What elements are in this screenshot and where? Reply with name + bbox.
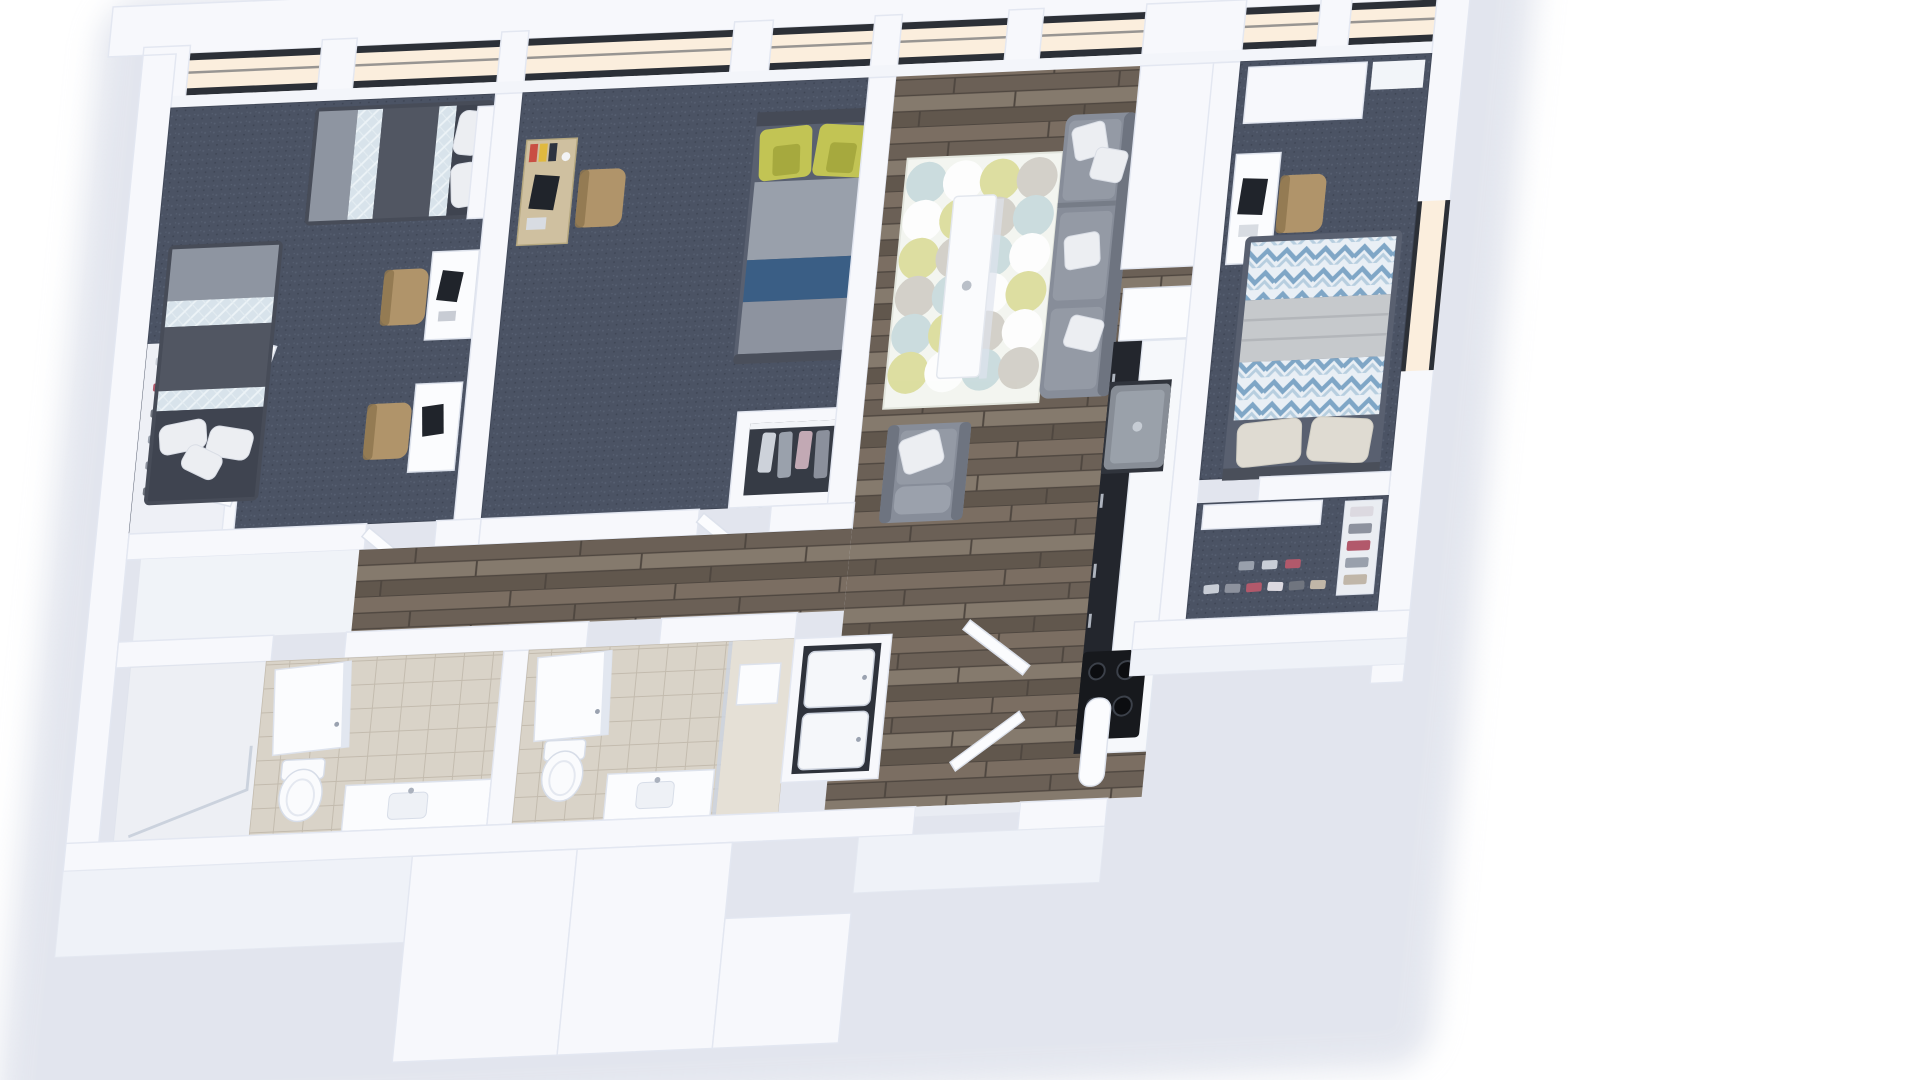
closet-shelf bbox=[1202, 500, 1323, 529]
refrigerator bbox=[1101, 379, 1172, 474]
pillow-inner bbox=[825, 142, 857, 173]
desk-2 bbox=[408, 382, 463, 472]
shoes bbox=[1289, 580, 1305, 590]
shoes bbox=[1246, 582, 1262, 592]
chair-1 bbox=[379, 268, 429, 326]
bed-duvet bbox=[159, 323, 272, 392]
window-pier bbox=[729, 20, 773, 76]
mirror-cabinet bbox=[273, 661, 352, 755]
bedroom2-south-wall bbox=[769, 503, 855, 533]
chevron-duvet bbox=[1234, 356, 1385, 420]
bed-bedroom-3 bbox=[1222, 230, 1403, 481]
shower-floor bbox=[113, 661, 266, 841]
shoes bbox=[1348, 523, 1372, 534]
green-pillow bbox=[758, 124, 812, 182]
sink-basin bbox=[387, 792, 428, 820]
navy-runner bbox=[743, 255, 864, 302]
shoes bbox=[1343, 574, 1367, 585]
desk-papers bbox=[438, 311, 456, 322]
pillow bbox=[1305, 416, 1374, 463]
vestibule-block bbox=[557, 842, 732, 1055]
south-wall-face bbox=[853, 826, 1105, 893]
window-pier bbox=[1316, 0, 1352, 50]
shoes bbox=[1267, 582, 1284, 591]
bedroom-1 bbox=[129, 94, 496, 534]
sink-basin bbox=[635, 781, 674, 809]
shoes bbox=[1285, 559, 1301, 569]
ac-unit bbox=[1370, 60, 1425, 90]
wardrobe bbox=[1243, 62, 1367, 123]
vestibule-block bbox=[712, 913, 851, 1048]
laptop bbox=[422, 404, 444, 437]
pillow bbox=[1236, 417, 1302, 468]
window-pier bbox=[1142, 0, 1247, 58]
twin-bed-top bbox=[304, 100, 495, 226]
shoes bbox=[1310, 580, 1327, 589]
south-wall-face bbox=[55, 856, 413, 957]
hall-nook-floor bbox=[133, 550, 362, 642]
foot-blanket bbox=[738, 297, 859, 354]
quilt-band bbox=[165, 297, 274, 328]
shoes bbox=[1346, 540, 1370, 551]
shoes bbox=[1224, 584, 1241, 593]
desk-1 bbox=[424, 250, 479, 340]
shoes bbox=[1261, 560, 1277, 570]
floor-plan-render bbox=[0, 0, 1920, 1080]
bathroom-2 bbox=[512, 639, 795, 825]
folded-blanket bbox=[1239, 294, 1391, 362]
chair-bedroom-2 bbox=[574, 168, 626, 228]
pillow-inner bbox=[772, 143, 800, 176]
bedroom1-south-wall bbox=[434, 519, 481, 547]
apartment bbox=[0, 0, 1540, 1080]
bed-duvet bbox=[372, 106, 439, 218]
vanity-sink bbox=[341, 779, 491, 831]
hanging-clothes bbox=[777, 431, 793, 478]
window-pier bbox=[870, 15, 902, 70]
shoes bbox=[1350, 506, 1374, 517]
shoes bbox=[1238, 561, 1254, 571]
armchair-seat bbox=[893, 484, 952, 514]
window-pier bbox=[497, 31, 529, 86]
window-pier bbox=[317, 38, 357, 94]
bed-foot-blanket bbox=[167, 245, 279, 302]
cabinet-door bbox=[273, 661, 352, 755]
vestibule-block bbox=[392, 849, 577, 1062]
pillow bbox=[1064, 231, 1100, 271]
desk-papers bbox=[1238, 224, 1259, 237]
shoes bbox=[1345, 557, 1369, 568]
chevron-duvet bbox=[1245, 236, 1396, 300]
south-wall bbox=[1018, 798, 1108, 830]
cabinet-door bbox=[534, 651, 612, 742]
bathroom-1 bbox=[113, 651, 504, 841]
desk-bedroom-2 bbox=[517, 138, 578, 245]
shoes bbox=[1203, 584, 1219, 594]
armchair bbox=[879, 422, 972, 524]
mirror-cabinet bbox=[534, 651, 612, 742]
chair-2 bbox=[362, 402, 412, 460]
laundry-closet bbox=[781, 634, 892, 782]
vanity-sink bbox=[603, 770, 714, 821]
chair-bedroom-3 bbox=[1275, 173, 1327, 233]
desk-papers bbox=[526, 217, 547, 230]
shower-shelf bbox=[736, 663, 781, 705]
window-pier bbox=[1004, 8, 1044, 64]
walk-in-closet bbox=[1186, 495, 1388, 619]
